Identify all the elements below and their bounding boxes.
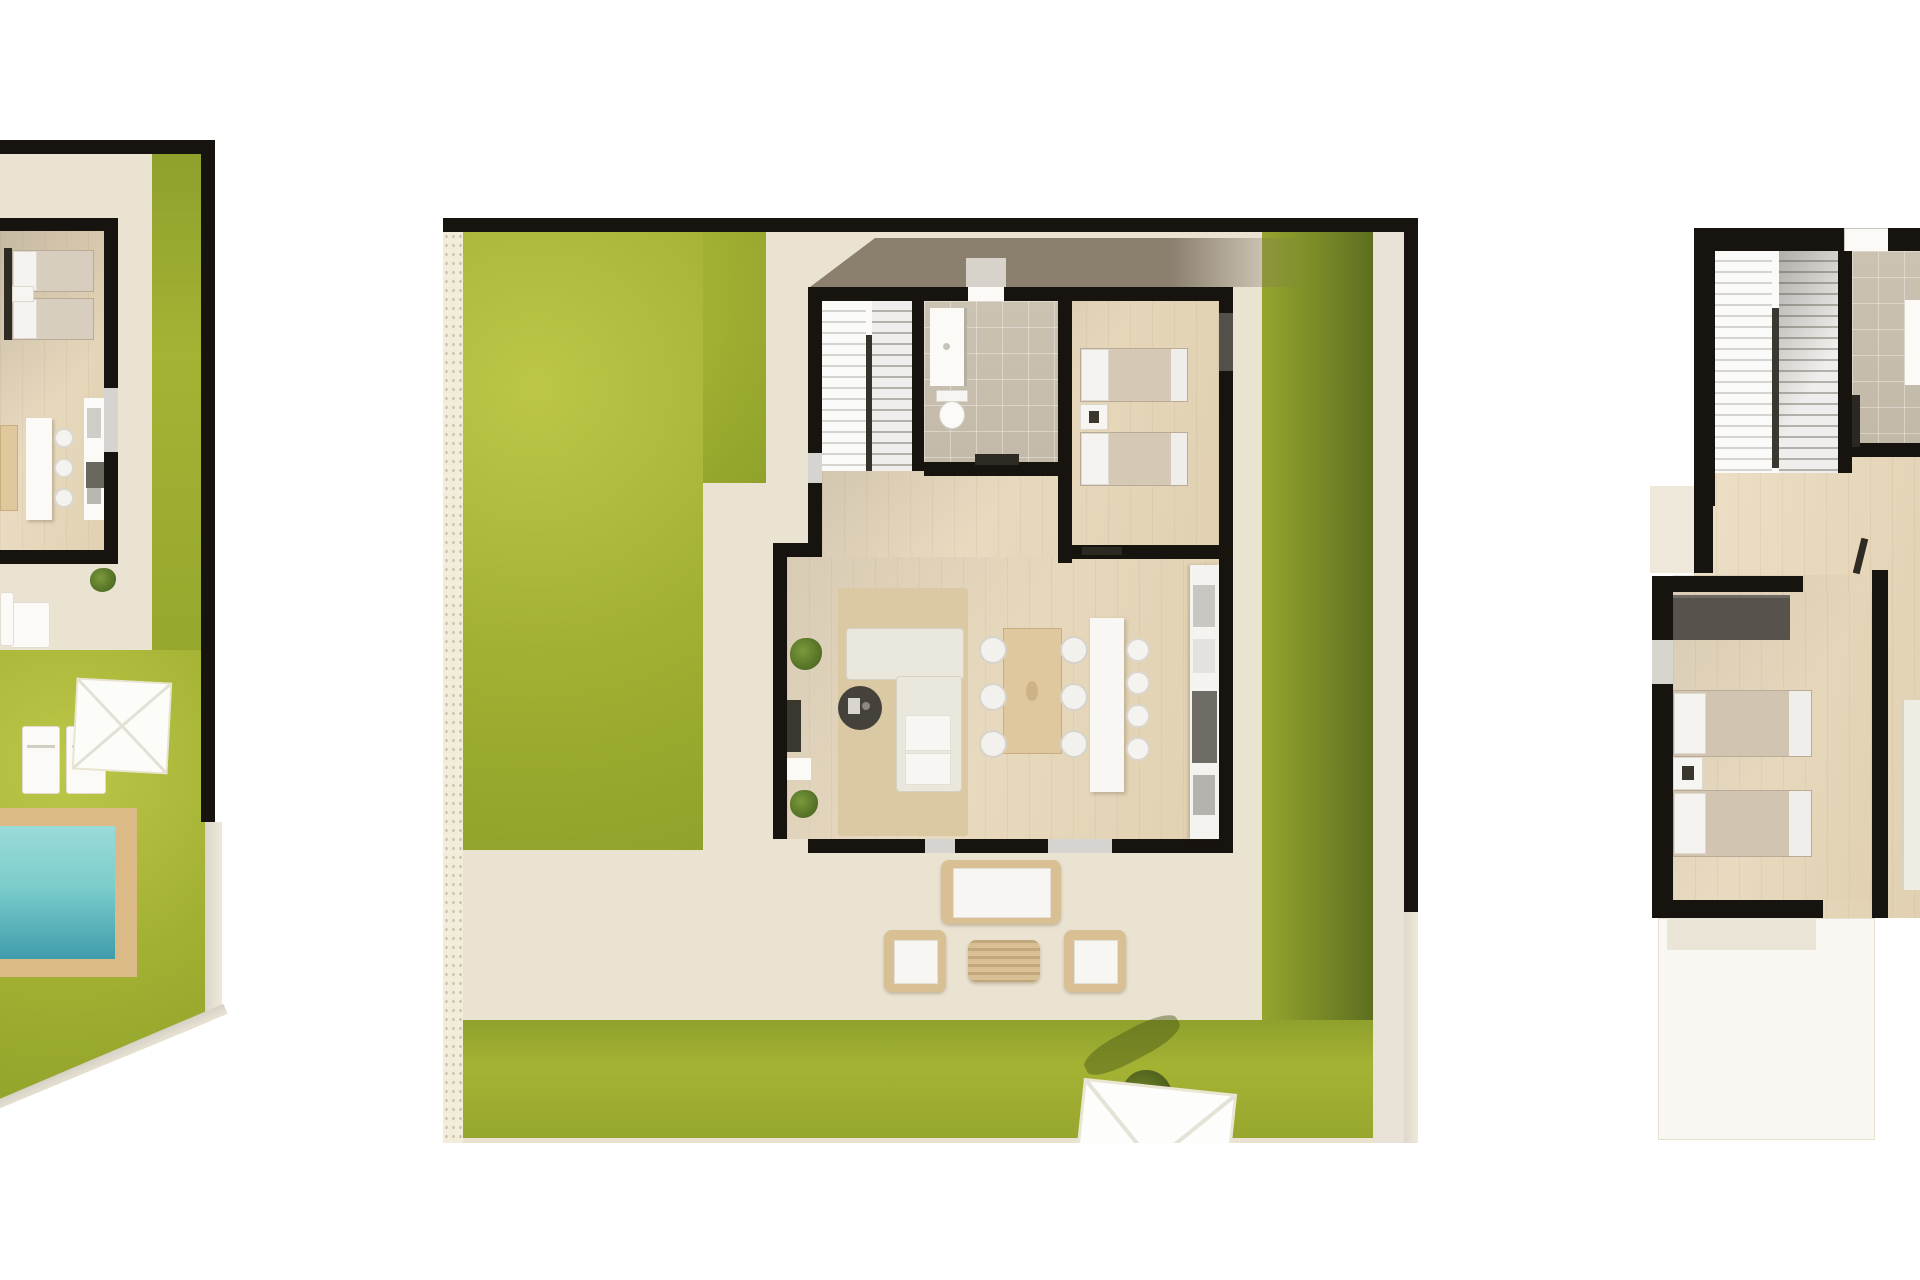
main-staircase bbox=[822, 301, 918, 471]
left-bed-headboard bbox=[4, 248, 12, 340]
nightstand-decor bbox=[1682, 766, 1694, 780]
bed-foot bbox=[1789, 691, 1811, 756]
stair-flight-left bbox=[822, 301, 866, 471]
main-shower-glass bbox=[964, 308, 967, 386]
upper-lower-terrace-strip bbox=[1667, 918, 1816, 950]
main-media-console bbox=[787, 758, 811, 780]
main-wall-bath-bedroom bbox=[1058, 301, 1072, 563]
main-entrance-mat bbox=[966, 258, 1006, 287]
main-bedroom-window bbox=[1219, 313, 1233, 371]
stair-shadow bbox=[1779, 251, 1838, 473]
floor-plan-left bbox=[0, 140, 232, 1115]
left-parasol bbox=[72, 678, 173, 775]
main-left-window bbox=[808, 453, 822, 483]
main-entrance-door bbox=[968, 287, 1004, 301]
left-twin-bed-2 bbox=[12, 298, 94, 340]
rattan-sofa-cushion bbox=[953, 868, 1051, 918]
main-building-wall-right bbox=[1219, 287, 1233, 853]
main-stool bbox=[1126, 671, 1150, 695]
main-building-wall-bottom-2 bbox=[955, 839, 1048, 853]
upper-bedroom-window bbox=[1652, 640, 1673, 684]
upper-bedroom-wall-top bbox=[1652, 576, 1803, 592]
upper-bedroom-wall-right bbox=[1872, 570, 1888, 918]
upper-twin-bed-1 bbox=[1673, 690, 1812, 757]
main-building-wall-top-2 bbox=[1004, 287, 1233, 301]
left-plot-wall-top bbox=[0, 140, 215, 154]
main-toilet-bowl bbox=[939, 401, 965, 429]
bed-foot bbox=[1171, 349, 1187, 401]
left-pool-water bbox=[0, 826, 115, 959]
left-building-wall-top bbox=[0, 218, 118, 231]
main-rattan-armchair-right bbox=[1064, 930, 1126, 992]
lounger-fold bbox=[27, 745, 55, 748]
left-plot-wall-right bbox=[201, 140, 215, 822]
stair-flight-left bbox=[1715, 251, 1772, 473]
upper-wall-left bbox=[1694, 228, 1715, 506]
stair-stringer bbox=[866, 335, 872, 471]
main-sofa-back bbox=[846, 628, 964, 680]
main-dining-chair bbox=[1060, 730, 1088, 758]
bed-foot bbox=[1789, 791, 1811, 856]
main-lawn-bottom bbox=[463, 1020, 1373, 1138]
main-rattan-armchair-left bbox=[884, 930, 946, 992]
pillow bbox=[1674, 693, 1706, 754]
main-nightstand bbox=[1080, 404, 1108, 430]
main-building-wall-bottom-1 bbox=[808, 839, 925, 853]
nightstand-decor bbox=[1089, 411, 1099, 423]
main-rattan-sofa bbox=[941, 860, 1061, 924]
armchair-cushion bbox=[1074, 940, 1118, 984]
pillow bbox=[1081, 433, 1109, 485]
main-lawn-right bbox=[1262, 232, 1373, 1022]
pillow bbox=[1674, 793, 1706, 854]
upper-lower-terrace bbox=[1658, 918, 1875, 1140]
upper-wardrobe bbox=[1673, 595, 1790, 640]
left-building-window bbox=[104, 388, 118, 452]
main-stool bbox=[1126, 737, 1150, 761]
armchair-cushion bbox=[894, 940, 938, 984]
upper-bathroom-wall-bottom bbox=[1850, 443, 1920, 457]
main-rattan-table bbox=[968, 940, 1040, 982]
main-tv bbox=[787, 700, 801, 752]
floor-plan-main bbox=[443, 218, 1418, 1143]
upper-partial-bed bbox=[1902, 700, 1920, 890]
table-decor bbox=[862, 702, 870, 710]
left-building-wall-bottom bbox=[0, 550, 118, 564]
left-lawn-strip bbox=[152, 154, 201, 654]
main-building-wall-bottom-3 bbox=[1112, 839, 1233, 853]
bed-foot bbox=[1171, 433, 1187, 485]
kitchen-fridge bbox=[1193, 639, 1215, 673]
main-building-wall-left-upper-1 bbox=[808, 287, 822, 453]
upper-entry-door bbox=[1844, 228, 1890, 253]
upper-wall-left-jog bbox=[1694, 497, 1713, 573]
left-kitchen-counter bbox=[84, 398, 104, 520]
main-gravel-strip-left bbox=[443, 232, 463, 1143]
main-lawn-left-lower bbox=[463, 232, 703, 850]
upper-bedroom-wall-left-2 bbox=[1652, 684, 1673, 918]
main-twin-bed-2 bbox=[1080, 432, 1188, 486]
pillow bbox=[13, 251, 37, 291]
main-dining-chair bbox=[979, 636, 1007, 664]
pillow bbox=[1081, 349, 1109, 401]
upper-bath-fixture bbox=[1905, 300, 1920, 385]
main-dining-chair bbox=[979, 730, 1007, 758]
sink bbox=[87, 408, 101, 438]
kitchen-oven bbox=[1193, 775, 1215, 815]
upper-wall-stair-right bbox=[1838, 251, 1852, 473]
table-decor bbox=[1026, 681, 1038, 701]
main-kitchen-counter bbox=[1190, 565, 1219, 839]
sofa-cushion bbox=[905, 715, 951, 751]
main-stool bbox=[1126, 704, 1150, 728]
main-path-right bbox=[1373, 232, 1404, 1143]
left-kitchen-island bbox=[26, 418, 52, 520]
left-kitchen-appliance-dark bbox=[86, 462, 104, 488]
table-decor bbox=[848, 698, 860, 714]
kitchen-cooktop bbox=[1192, 691, 1217, 763]
main-building-wall-top-1 bbox=[808, 287, 968, 301]
main-sliding-door-1 bbox=[925, 839, 955, 853]
upper-outside-ledge bbox=[1650, 486, 1694, 573]
upper-bedroom-wall-left-1 bbox=[1652, 576, 1673, 640]
main-dining-chair bbox=[1060, 683, 1088, 711]
upper-nightstand bbox=[1673, 757, 1703, 790]
main-dining-table bbox=[1003, 628, 1062, 754]
main-stool bbox=[1126, 638, 1150, 662]
left-dining-table-partial bbox=[0, 425, 18, 511]
left-stool bbox=[54, 428, 74, 448]
floor-plan-upper bbox=[1593, 195, 1920, 1145]
main-sliding-door-2 bbox=[1048, 839, 1112, 853]
left-nightstand bbox=[12, 286, 34, 302]
floor-plans-canvas bbox=[0, 0, 1920, 1280]
main-shower bbox=[930, 308, 964, 386]
main-porch-shadow bbox=[810, 238, 1310, 287]
upper-wall-top-2 bbox=[1888, 228, 1920, 251]
main-coffee-table bbox=[838, 686, 882, 730]
left-terrace-seat bbox=[0, 592, 14, 646]
main-wall-stair-bath bbox=[912, 301, 924, 471]
upper-wall-top-1 bbox=[1694, 228, 1844, 251]
main-twin-bed-1 bbox=[1080, 348, 1188, 402]
stair-stringer bbox=[1772, 308, 1779, 468]
main-bath-vanity bbox=[975, 454, 1019, 465]
main-kitchen-island bbox=[1090, 618, 1124, 792]
main-dining-chair bbox=[1060, 636, 1088, 664]
main-bedroom-door bbox=[1082, 547, 1122, 555]
pillow bbox=[13, 299, 37, 339]
left-plot-stone-edge-right bbox=[205, 822, 222, 1014]
left-sun-lounger-1 bbox=[22, 726, 60, 794]
upper-bedroom-wall-bottom bbox=[1652, 900, 1823, 918]
main-dining-chair bbox=[979, 683, 1007, 711]
upper-staircase bbox=[1715, 251, 1838, 473]
main-building-wall-left-lower bbox=[773, 543, 787, 839]
main-plot-wall-top bbox=[443, 218, 1418, 232]
main-sofa-chaise bbox=[896, 676, 962, 792]
shower-drain bbox=[943, 343, 950, 350]
main-plot-wall-right bbox=[1404, 218, 1418, 912]
left-stool bbox=[54, 488, 74, 508]
upper-bath-door bbox=[1852, 395, 1860, 447]
left-stool bbox=[54, 458, 74, 478]
kitchen-sink bbox=[1193, 585, 1215, 627]
main-plot-stone-edge-right bbox=[1404, 912, 1418, 1143]
sofa-cushion bbox=[905, 753, 951, 785]
main-building-wall-left-upper-2 bbox=[808, 483, 822, 543]
upper-twin-bed-2 bbox=[1673, 790, 1812, 857]
left-terrace-table bbox=[10, 602, 50, 648]
